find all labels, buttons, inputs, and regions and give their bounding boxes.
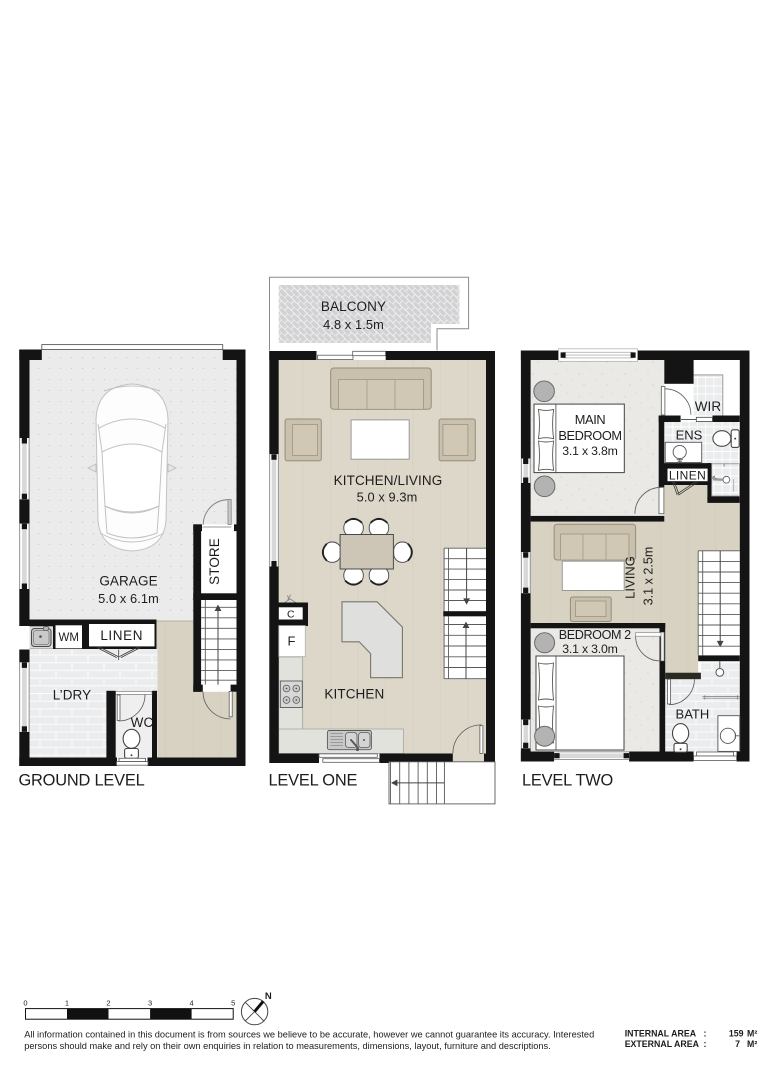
svg-text:KITCHEN: KITCHEN	[324, 687, 384, 702]
svg-text:L’DRY: L’DRY	[53, 688, 92, 703]
svg-text:INTERNAL AREA: INTERNAL AREA	[625, 1028, 697, 1038]
svg-text:F: F	[288, 634, 296, 649]
svg-text:LIVING: LIVING	[623, 556, 638, 599]
svg-text:WM: WM	[58, 632, 78, 644]
svg-text:BEDROOM: BEDROOM	[558, 428, 621, 443]
svg-text:LINEN: LINEN	[100, 628, 143, 643]
svg-text:5: 5	[231, 999, 235, 1008]
svg-text:M²: M²	[747, 1039, 757, 1049]
svg-text:N: N	[265, 991, 272, 1002]
svg-text:persons should make and rely o: persons should make and rely on their ow…	[24, 1041, 551, 1051]
svg-text:MAIN: MAIN	[575, 412, 606, 427]
svg-text:3.1 x 3.0m: 3.1 x 3.0m	[562, 642, 617, 656]
svg-text:BALCONY: BALCONY	[321, 299, 386, 314]
svg-text:WIR: WIR	[695, 399, 722, 414]
svg-text:5.0 x 6.1m: 5.0 x 6.1m	[98, 591, 159, 606]
svg-text:4: 4	[190, 999, 194, 1008]
svg-text:LEVEL TWO: LEVEL TWO	[522, 772, 613, 790]
svg-text:1: 1	[65, 999, 69, 1008]
svg-text:2: 2	[106, 999, 110, 1008]
svg-text:7: 7	[735, 1039, 740, 1049]
svg-text:GARAGE: GARAGE	[99, 574, 157, 589]
svg-text:4.8 x 1.5m: 4.8 x 1.5m	[323, 317, 384, 332]
svg-text:159: 159	[729, 1028, 744, 1038]
svg-text:3: 3	[148, 999, 152, 1008]
svg-text:3.1 x 2.5m: 3.1 x 2.5m	[642, 547, 656, 606]
svg-text:EXTERNAL AREA: EXTERNAL AREA	[625, 1039, 700, 1049]
svg-text:C: C	[287, 608, 295, 620]
svg-text:KITCHEN/LIVING: KITCHEN/LIVING	[334, 473, 443, 488]
svg-text::: :	[704, 1028, 707, 1038]
svg-text:5.0 x 9.3m: 5.0 x 9.3m	[357, 490, 418, 505]
svg-text:M²: M²	[747, 1028, 757, 1038]
svg-text:WC: WC	[131, 715, 154, 730]
svg-text:BEDROOM 2: BEDROOM 2	[559, 628, 631, 642]
svg-text:ENS: ENS	[676, 428, 703, 443]
svg-text:LEVEL ONE: LEVEL ONE	[269, 772, 358, 790]
svg-text::: :	[704, 1039, 707, 1049]
svg-text:3.1 x 3.8m: 3.1 x 3.8m	[562, 444, 617, 458]
svg-text:All information contained in t: All information contained in this docume…	[24, 1030, 594, 1040]
svg-text:BATH: BATH	[676, 707, 710, 722]
svg-text:GROUND LEVEL: GROUND LEVEL	[19, 772, 145, 790]
svg-text:LINEN: LINEN	[669, 469, 706, 483]
svg-text:STORE: STORE	[207, 538, 222, 585]
svg-text:0: 0	[23, 999, 27, 1008]
